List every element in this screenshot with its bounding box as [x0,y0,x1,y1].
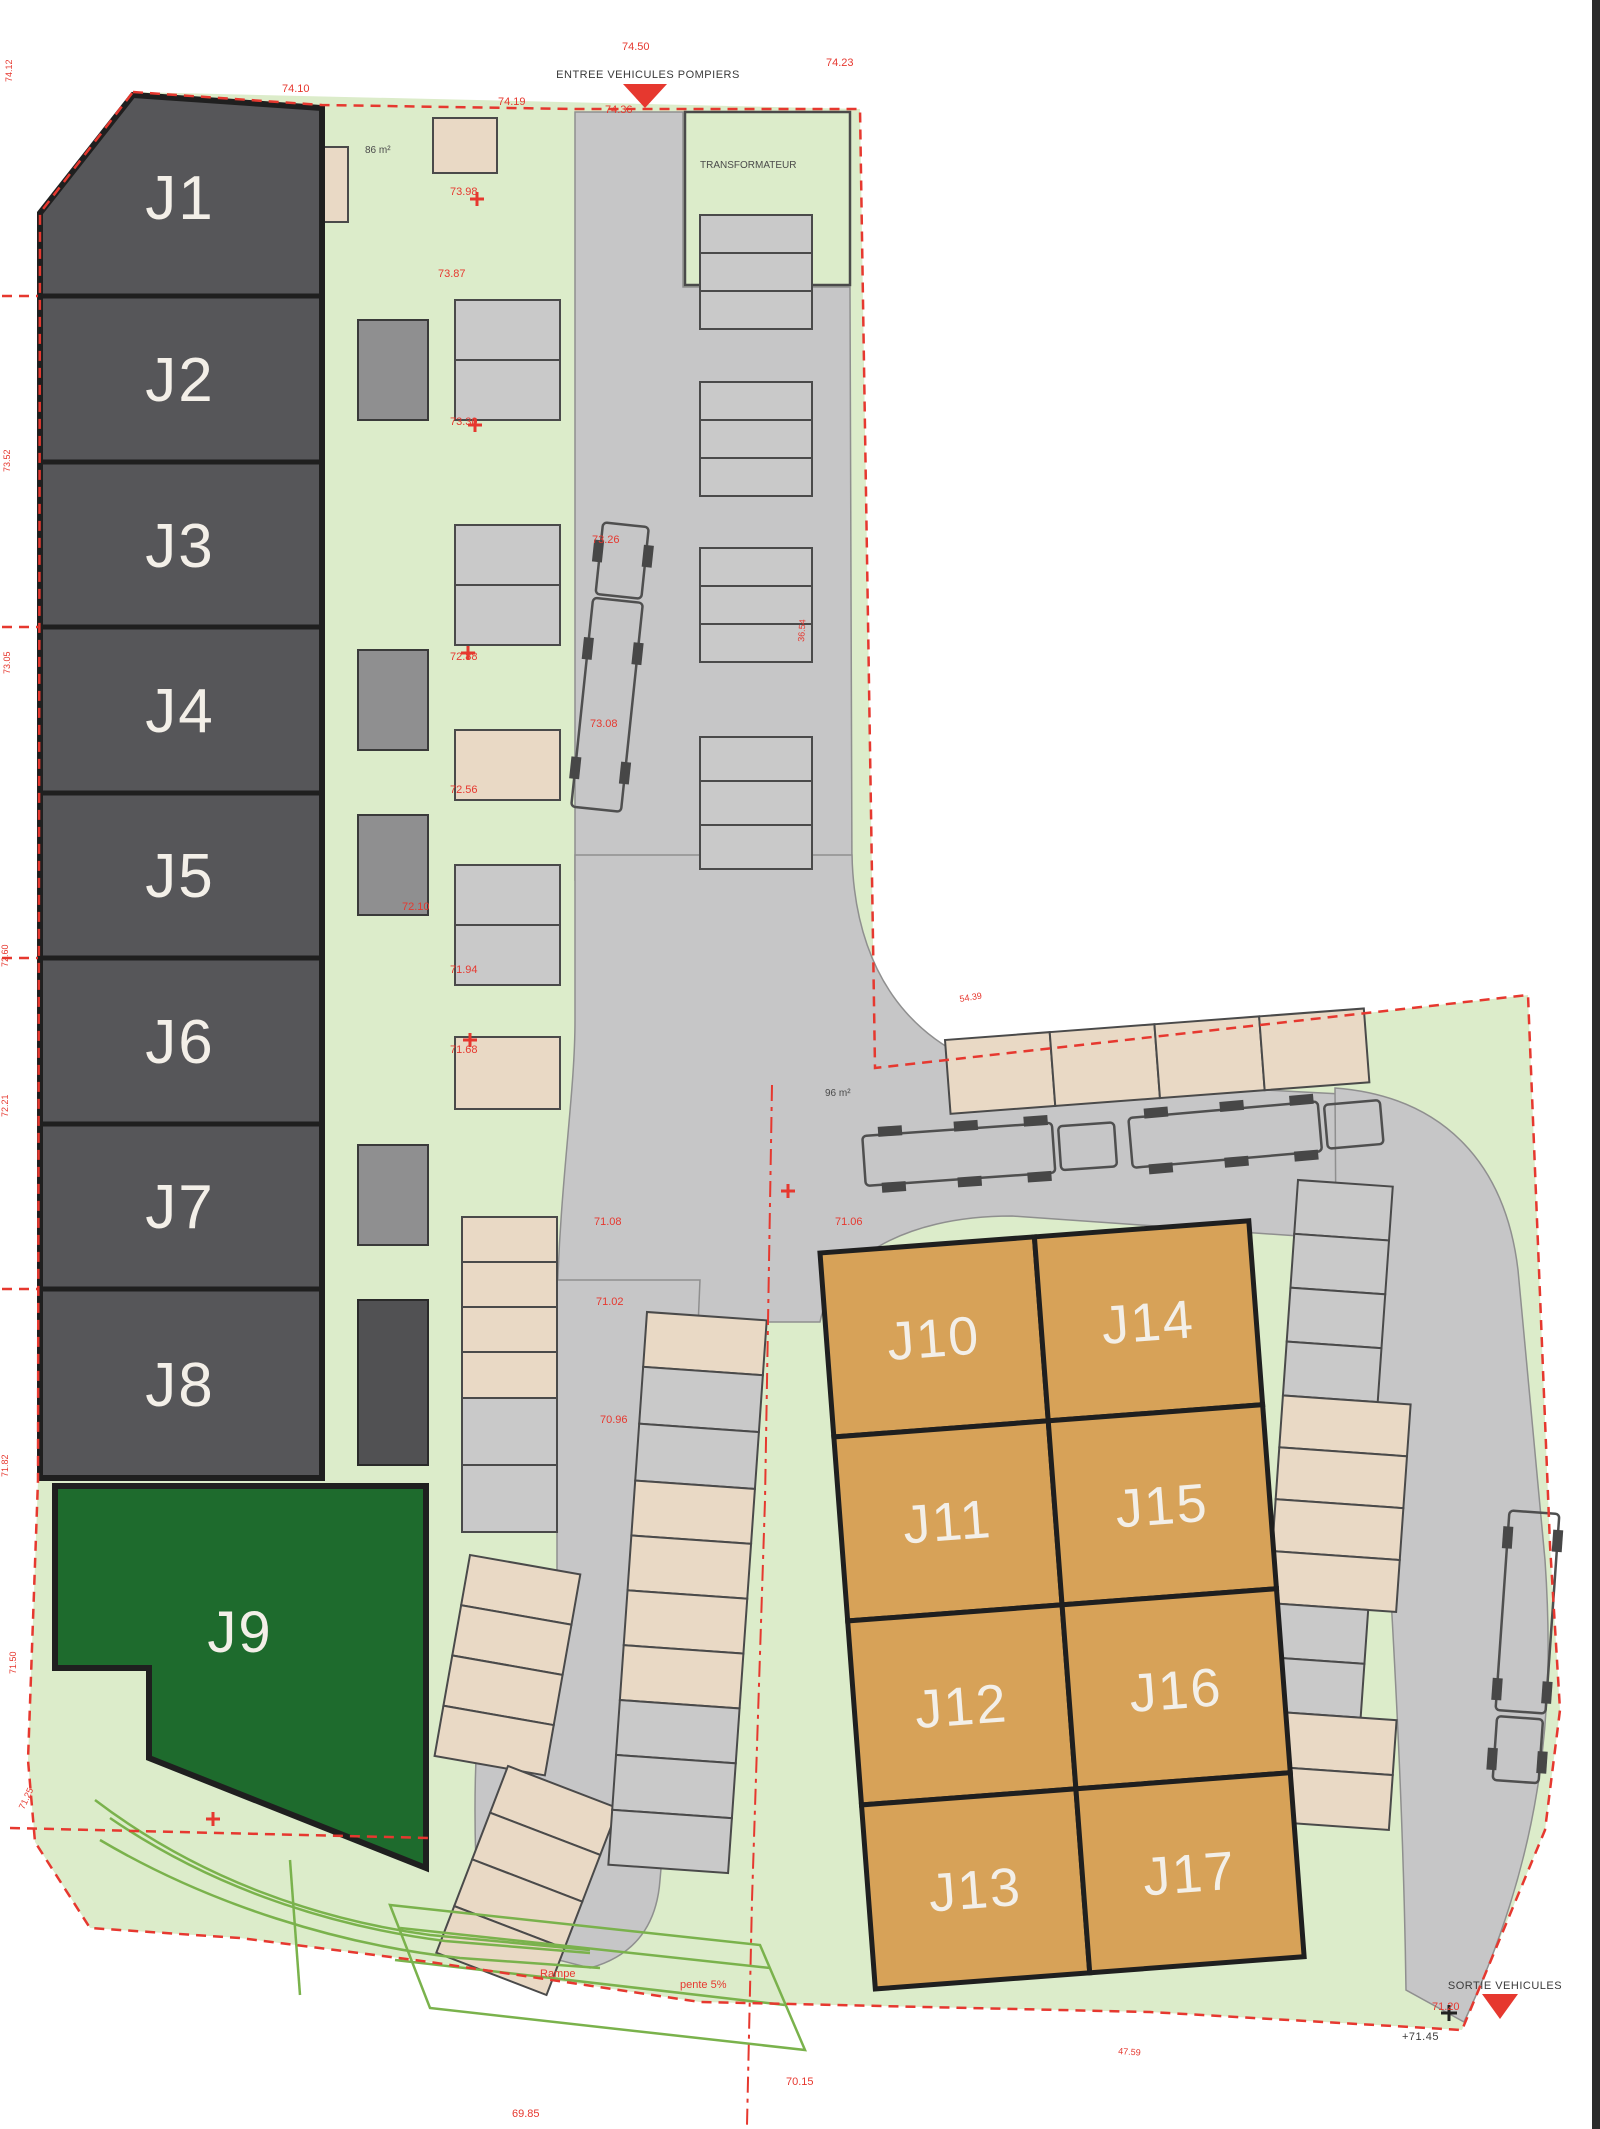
svg-text:47.59: 47.59 [1118,2046,1141,2058]
unit-label-J4[interactable]: J4 [145,677,214,746]
svg-text:71.68: 71.68 [450,1044,478,1056]
svg-text:70.15: 70.15 [786,2076,814,2088]
svg-text:73.52: 73.52 [2,449,12,472]
entrance-label: ENTREE VEHICULES POMPIERS [556,69,740,81]
svg-text:74.10: 74.10 [282,83,310,95]
unit-label-J1[interactable]: J1 [145,164,214,233]
svg-text:71.02: 71.02 [596,1296,624,1308]
exit-arrow-icon [1482,1994,1518,2019]
svg-text:72.10: 72.10 [402,901,430,913]
svg-text:72.21: 72.21 [0,1094,10,1117]
unit-label-J3[interactable]: J3 [145,512,214,581]
unit-block-outline[interactable] [40,95,322,1478]
svg-text:70.96: 70.96 [600,1414,628,1426]
svg-text:73.08: 73.08 [590,718,618,730]
unit-label-J17[interactable]: J17 [1141,1841,1238,1908]
unit-label-J5[interactable]: J5 [145,842,214,911]
svg-text:71.08: 71.08 [594,1216,622,1228]
svg-text:72.88: 72.88 [450,651,478,663]
unit-label-J9[interactable]: J9 [207,1600,272,1665]
svg-text:73.87: 73.87 [438,268,466,280]
area-label-1: 86 m² [365,145,391,156]
site-plan: TRANSFORMATEUR [0,0,1600,2129]
exit-label: SORTIE VEHICULES [1448,1980,1562,1992]
svg-text:74.50: 74.50 [622,41,650,53]
unit-label-J15[interactable]: J15 [1113,1473,1210,1540]
unit-block-J10-J17: J10 J11 J12 J13 J14 J15 J16 J17 [820,1221,1304,1989]
svg-text:69.85: 69.85 [512,2108,540,2120]
svg-text:71.82: 71.82 [0,1454,10,1477]
svg-text:71.94: 71.94 [450,964,478,976]
ramp-label: Rampe [540,1968,575,1980]
unit-label-J12[interactable]: J12 [913,1673,1010,1740]
svg-text:73.30: 73.30 [450,416,478,428]
site-plan-page: TRANSFORMATEUR [0,0,1600,2129]
entrance-marker: ENTREE VEHICULES POMPIERS [556,69,740,108]
unit-label-J2[interactable]: J2 [145,346,214,415]
svg-text:71.20: 71.20 [1432,2001,1460,2013]
svg-text:71.06: 71.06 [835,1216,863,1228]
svg-text:74.19: 74.19 [498,96,526,108]
svg-text:73.26: 73.26 [592,534,620,546]
unit-label-J6[interactable]: J6 [145,1008,214,1077]
unit-label-J7[interactable]: J7 [145,1173,214,1242]
unit-label-J13[interactable]: J13 [927,1857,1024,1924]
svg-text:54.39: 54.39 [959,991,983,1004]
transformer-label: TRANSFORMATEUR [700,160,796,171]
building-strip-J1-J8: J1 J2 J3 J4 J5 J6 J7 J8 [40,95,322,1478]
unit-label-J11[interactable]: J11 [901,1489,994,1556]
slope-label: pente 5% [680,1979,727,1991]
unit-label-J16[interactable]: J16 [1127,1657,1224,1724]
svg-text:36.54: 36.54 [796,619,808,642]
unit-label-J8[interactable]: J8 [145,1351,214,1420]
svg-text:73.98: 73.98 [450,186,478,198]
svg-text:74.12: 74.12 [4,59,14,82]
exit-level-label: +71.45 [1402,2031,1439,2043]
svg-text:74.23: 74.23 [826,57,854,69]
unit-label-J10[interactable]: J10 [885,1305,982,1372]
svg-text:72.56: 72.56 [450,784,478,796]
svg-text:74.36: 74.36 [605,104,633,116]
svg-text:71.50: 71.50 [8,1651,18,1674]
area-label-2: 96 m² [825,1088,851,1099]
svg-text:72.60: 72.60 [0,944,10,967]
unit-label-J14[interactable]: J14 [1099,1289,1196,1356]
sheet-border [1592,0,1600,2129]
svg-text:73.05: 73.05 [2,651,12,674]
